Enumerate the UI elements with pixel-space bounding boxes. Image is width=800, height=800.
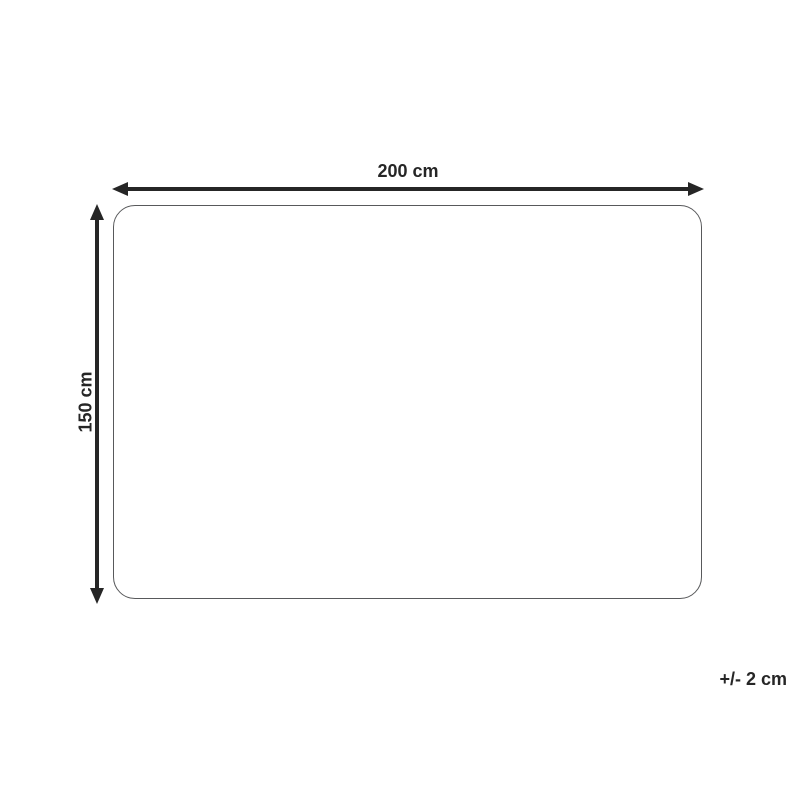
dimension-diagram: 200 cm 150 cm +/- 2 cm bbox=[0, 0, 800, 800]
width-label: 200 cm bbox=[128, 159, 688, 183]
height-label: 150 cm bbox=[76, 371, 97, 432]
product-outline bbox=[113, 205, 702, 599]
tolerance-label: +/- 2 cm bbox=[719, 667, 787, 691]
width-dimension-arrow-icon bbox=[128, 187, 688, 191]
